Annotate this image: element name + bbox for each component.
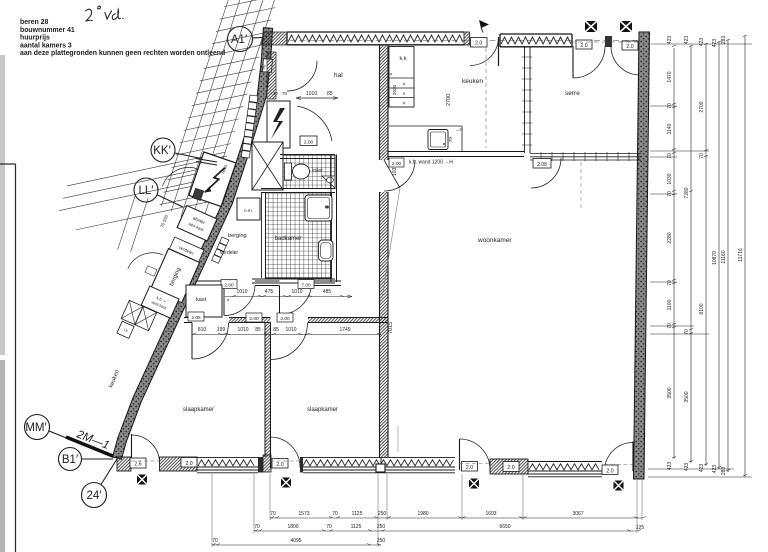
svg-text:woonkamer: woonkamer [477,237,512,244]
svg-text:475: 475 [265,289,274,295]
svg-text:2.0: 2.0 [276,462,283,468]
svg-text:250: 250 [378,511,387,517]
svg-text:×: × [389,72,392,78]
svg-text:2.00: 2.00 [280,316,290,322]
svg-text:85: 85 [255,327,261,333]
svg-text:485: 485 [323,289,332,295]
svg-text:3500: 3500 [667,387,673,398]
svg-text:kast: kast [196,297,207,303]
svg-text:283: 283 [721,467,727,476]
svg-text:l.k: l.k [123,328,128,333]
svg-text:2.0: 2.0 [606,468,613,474]
svg-text:1140: 1140 [667,123,673,134]
svg-text:423: 423 [699,38,705,47]
svg-text:70: 70 [332,511,338,517]
svg-text:×: × [402,101,405,107]
svg-text:283: 283 [721,36,727,45]
svg-text:2700: 2700 [446,94,452,106]
svg-text:2.0: 2.0 [466,465,473,471]
svg-text:2.00: 2.00 [249,316,259,322]
svg-text:85: 85 [327,91,333,97]
svg-text:7015: 7015 [388,322,394,334]
svg-text:70: 70 [667,280,673,286]
svg-text:250: 250 [377,538,386,544]
svg-text:a: a [227,297,230,302]
svg-text:2280: 2280 [667,232,673,243]
svg-text:70 550: 70 550 [159,214,169,229]
svg-text:2.00: 2.00 [392,161,402,167]
svg-text:verdeler: verdeler [220,250,238,256]
svg-text:2.00: 2.00 [304,140,314,146]
svg-text:70: 70 [326,524,332,530]
svg-text:85: 85 [273,327,279,333]
svg-text:70: 70 [282,91,288,96]
svg-text:1125: 1125 [352,511,363,517]
svg-text:125: 125 [636,525,645,531]
svg-text:70: 70 [667,153,673,159]
svg-text:2.00: 2.00 [224,283,234,289]
svg-text:n.m.: n.m. [244,208,253,213]
svg-text:A1′: A1′ [231,34,247,46]
svg-text:1470: 1470 [667,71,673,82]
svg-text:10870: 10870 [712,251,718,265]
svg-text:2700: 2700 [699,101,705,112]
svg-text:423: 423 [684,463,690,472]
svg-text:×: × [402,82,405,88]
svg-text:bouwnummer 41: bouwnummer 41 [20,27,75,34]
svg-text:70: 70 [667,323,673,329]
svg-text:70: 70 [270,511,276,517]
svg-text:3500: 3500 [684,391,690,402]
svg-text:1603: 1603 [485,511,496,517]
svg-text:1800: 1800 [287,524,298,530]
svg-text:70: 70 [684,329,690,335]
svg-text:2.08: 2.08 [537,162,547,168]
svg-text:70: 70 [699,153,705,159]
svg-text:6650: 6650 [499,524,510,530]
svg-text:70: 70 [667,191,673,197]
svg-text:→H: →H [455,127,463,132]
svg-text:1010: 1010 [291,289,302,295]
svg-text:2020: 2020 [392,84,397,95]
svg-text:2.0: 2.0 [185,461,192,467]
svg-text:7280: 7280 [684,187,690,198]
svg-text:huurprijs: huurprijs [20,35,50,42]
svg-text:423: 423 [699,464,705,473]
svg-text:423: 423 [684,36,690,45]
svg-text:250: 250 [377,524,386,530]
svg-text:1010: 1010 [285,327,296,333]
svg-text:423: 423 [712,465,718,474]
svg-text:badkamer: badkamer [275,236,302,242]
svg-text:aantal kamers 3: aantal kamers 3 [20,42,72,49]
svg-text:keuken: keuken [462,78,483,85]
svg-text:2.05: 2.05 [191,315,201,321]
svg-text:toilet: toilet [312,168,323,174]
svg-text:7.00: 7.00 [301,283,311,289]
svg-text:423: 423 [712,39,718,48]
svg-text:2.0: 2.0 [580,43,587,49]
svg-text:MM′: MM′ [25,422,46,434]
svg-text:24′: 24′ [87,490,102,502]
svg-text:4095: 4095 [290,538,301,544]
svg-text:1010: 1010 [306,91,317,97]
svg-text:k.b. wand 1200 →H: k.b. wand 1200 →H [409,160,453,166]
svg-text:1749: 1749 [339,327,350,333]
svg-text:3067: 3067 [572,511,583,517]
svg-text:keuken: keuken [108,369,121,389]
svg-text:1010: 1010 [236,289,247,295]
svg-text:2.0: 2.0 [507,465,514,471]
svg-text:hal: hal [334,72,343,79]
svg-text:423: 423 [667,462,673,471]
svg-text:1980: 1980 [417,511,428,517]
svg-text:aan deze plattegronden kunnen: aan deze plattegronden kunnen geen recht… [20,50,225,57]
svg-text:11716: 11716 [738,248,744,262]
svg-text:2.6: 2.6 [134,462,141,468]
svg-text:11160: 11160 [721,250,727,263]
svg-text:slaapkamer: slaapkamer [183,407,214,413]
svg-text:beren 28: beren 28 [20,19,49,26]
svg-text:8100: 8100 [699,303,705,314]
svg-text:70: 70 [667,103,673,109]
svg-text:2.0: 2.0 [626,44,633,50]
svg-text:B1′: B1′ [62,454,78,466]
svg-text:slaapkamer: slaapkamer [307,407,338,413]
svg-text:423: 423 [667,36,673,45]
svg-text:70: 70 [254,524,260,530]
svg-text:2.0: 2.0 [475,41,482,47]
svg-text:810: 810 [198,327,207,333]
svg-text:70: 70 [448,136,453,142]
svg-text:serre: serre [565,90,580,97]
svg-text:1030: 1030 [667,173,673,184]
svg-text:KK′: KK′ [153,145,171,157]
svg-text:1125: 1125 [351,524,362,530]
svg-text:199: 199 [217,327,226,333]
svg-text:×: × [402,92,405,98]
svg-text:berging: berging [228,233,247,239]
svg-text:70: 70 [212,538,218,544]
svg-text:1573: 1573 [298,511,309,517]
svg-text:1010: 1010 [237,327,248,333]
svg-text:k.k: k.k [399,56,406,62]
svg-text:1100: 1100 [667,299,673,310]
